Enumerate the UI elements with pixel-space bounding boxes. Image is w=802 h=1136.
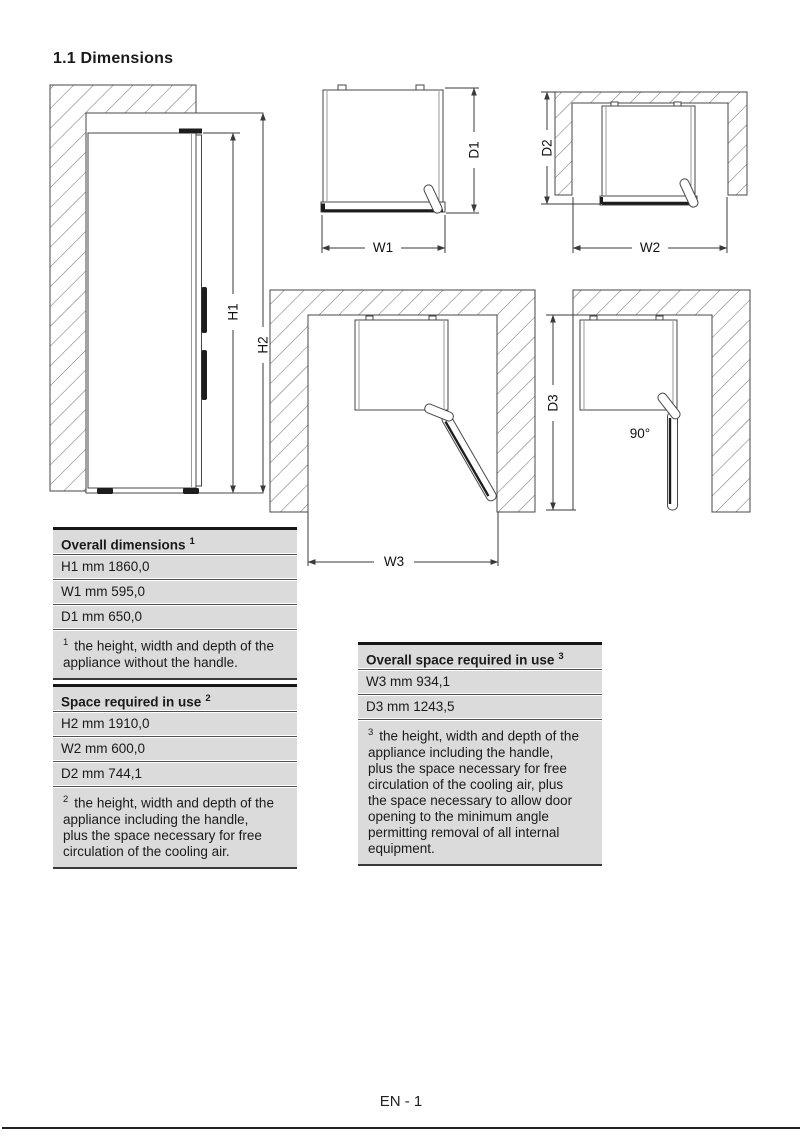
table-overall-space-required: Overall space required in use3 W3 mm 934… xyxy=(358,642,602,866)
diagram-top-view-door-open: W3 xyxy=(270,290,535,570)
table-footnote: 3the height, width and depth of the appl… xyxy=(358,721,602,864)
diagram-top-view-alcove: D2 W2 xyxy=(540,92,748,256)
lower-handle xyxy=(202,350,208,400)
rear-foot xyxy=(183,488,199,494)
hinge-bump xyxy=(416,85,424,90)
front-foot xyxy=(97,488,113,494)
hinge-bump xyxy=(590,316,597,320)
w2-dim-label: W2 xyxy=(640,240,660,255)
hinge-bump xyxy=(366,316,373,320)
dimension-row-w2: W2 mm 600,0 xyxy=(53,738,297,760)
table-footnote: 1the height, width and depth of the appl… xyxy=(53,631,297,678)
h1-dim-label: H1 xyxy=(226,303,241,320)
cabinet-top-view xyxy=(355,320,448,410)
table-space-required: Space required in use2 H2 mm 1910,0 W2 m… xyxy=(53,684,297,869)
hinge-bump xyxy=(656,316,663,320)
w3-dim-label: W3 xyxy=(384,554,404,569)
dimension-row-d1: D1 mm 650,0 xyxy=(53,606,297,628)
hinge-bump xyxy=(611,102,618,106)
dimension-row-d3: D3 mm 1243,5 xyxy=(358,696,602,718)
dimension-diagrams: H1 H2 D1 W1 xyxy=(0,0,802,600)
hinge-bump xyxy=(674,102,681,106)
open-door xyxy=(421,394,502,509)
manual-page: { "page": { "title": "1.1 Dimensions", "… xyxy=(0,0,802,1136)
fridge-body-side xyxy=(88,133,196,488)
fridge-door-slab xyxy=(196,135,202,486)
hinge-bump xyxy=(429,316,436,320)
diagram-top-view-closed: D1 W1 xyxy=(321,85,482,256)
d2-dim-label: D2 xyxy=(540,139,555,156)
table-header: Overall dimensions1 xyxy=(53,530,297,553)
dimension-row-d2: D2 mm 744,1 xyxy=(53,763,297,785)
d3-dim-label: D3 xyxy=(546,394,561,411)
table-footnote: 2the height, width and depth of the appl… xyxy=(53,788,297,867)
diagram-top-view-door-90: 90° D3 xyxy=(546,290,751,512)
dimension-row-w3: W3 mm 934,1 xyxy=(358,671,602,693)
footer-rule xyxy=(2,1127,800,1129)
diagram-side-view: H1 H2 xyxy=(50,85,271,494)
table-overall-dimensions: Overall dimensions1 H1 mm 1860,0 W1 mm 5… xyxy=(53,527,297,680)
dimension-row-w1: W1 mm 595,0 xyxy=(53,581,297,603)
dimension-row-h1: H1 mm 1860,0 xyxy=(53,556,297,578)
dimension-row-h2: H2 mm 1910,0 xyxy=(53,713,297,735)
hinge-cover xyxy=(179,129,202,134)
w1-dim-label: W1 xyxy=(373,240,393,255)
table-header: Overall space required in use3 xyxy=(358,645,602,668)
cabinet-top-view xyxy=(323,90,443,202)
door-angle-label: 90° xyxy=(630,426,650,441)
upper-handle xyxy=(202,287,208,333)
page-number: EN - 1 xyxy=(0,1093,802,1110)
h2-dim-label: H2 xyxy=(256,336,271,353)
hinge-bump xyxy=(338,85,346,90)
table-header: Space required in use2 xyxy=(53,687,297,710)
d1-dim-label: D1 xyxy=(467,141,482,158)
